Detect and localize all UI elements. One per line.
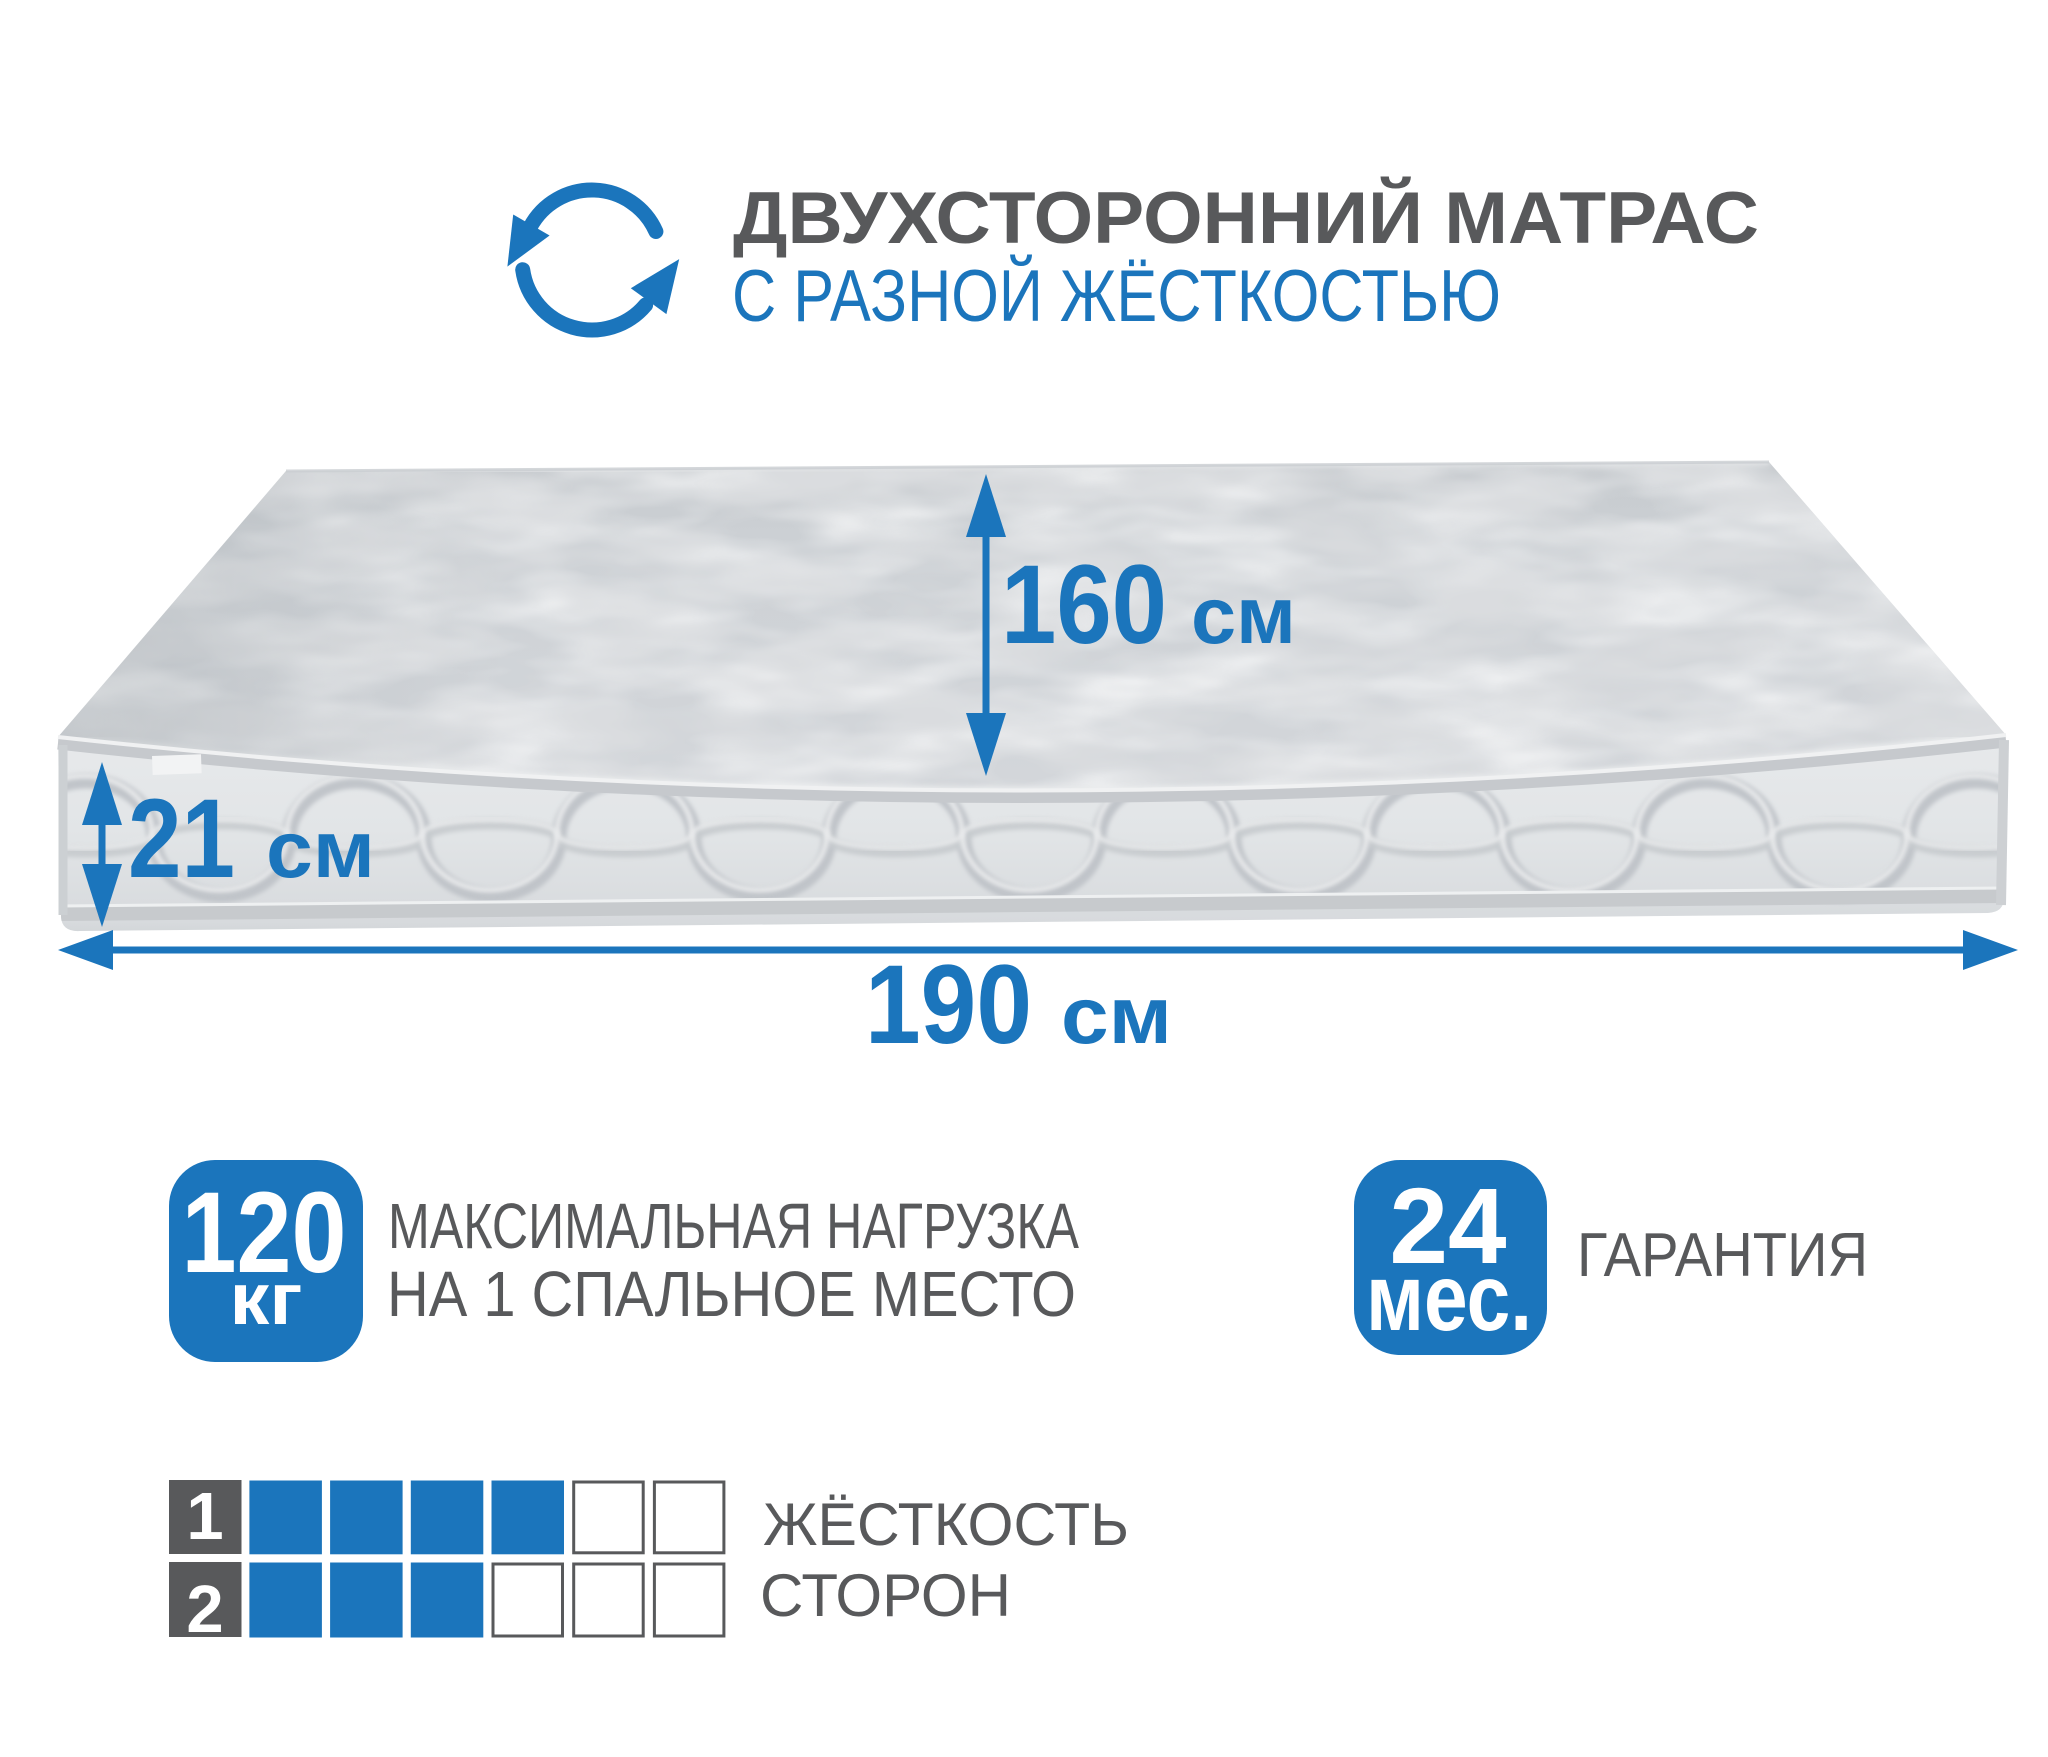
svg-text:190: 190 <box>865 942 1032 1067</box>
svg-text:кг: кг <box>230 1259 303 1340</box>
svg-text:НА 1 СПАЛЬНОЕ МЕСТО: НА 1 СПАЛЬНОЕ МЕСТО <box>387 1258 1076 1330</box>
svg-text:см: см <box>266 805 375 895</box>
svg-text:ЖЁСТКОСТЬ: ЖЁСТКОСТЬ <box>763 1491 1129 1558</box>
svg-text:2: 2 <box>186 1572 223 1647</box>
svg-text:см: см <box>1191 571 1296 661</box>
svg-text:мес.: мес. <box>1366 1245 1532 1351</box>
svg-text:ГАРАНТИЯ: ГАРАНТИЯ <box>1577 1221 1868 1290</box>
svg-text:1: 1 <box>186 1479 223 1554</box>
svg-text:ДВУХСТОРОННИЙ МАТРАС: ДВУХСТОРОННИЙ МАТРАС <box>733 177 1759 259</box>
svg-text:МАКСИМАЛЬНАЯ НАГРУЗКА: МАКСИМАЛЬНАЯ НАГРУЗКА <box>388 1190 1079 1262</box>
svg-text:см: см <box>1061 971 1172 1061</box>
svg-text:21: 21 <box>128 776 235 901</box>
svg-text:СТОРОН: СТОРОН <box>760 1562 1011 1629</box>
svg-text:160: 160 <box>1001 542 1167 667</box>
svg-text:С РАЗНОЙ ЖЁСТКОСТЬЮ: С РАЗНОЙ ЖЁСТКОСТЬЮ <box>732 255 1501 337</box>
